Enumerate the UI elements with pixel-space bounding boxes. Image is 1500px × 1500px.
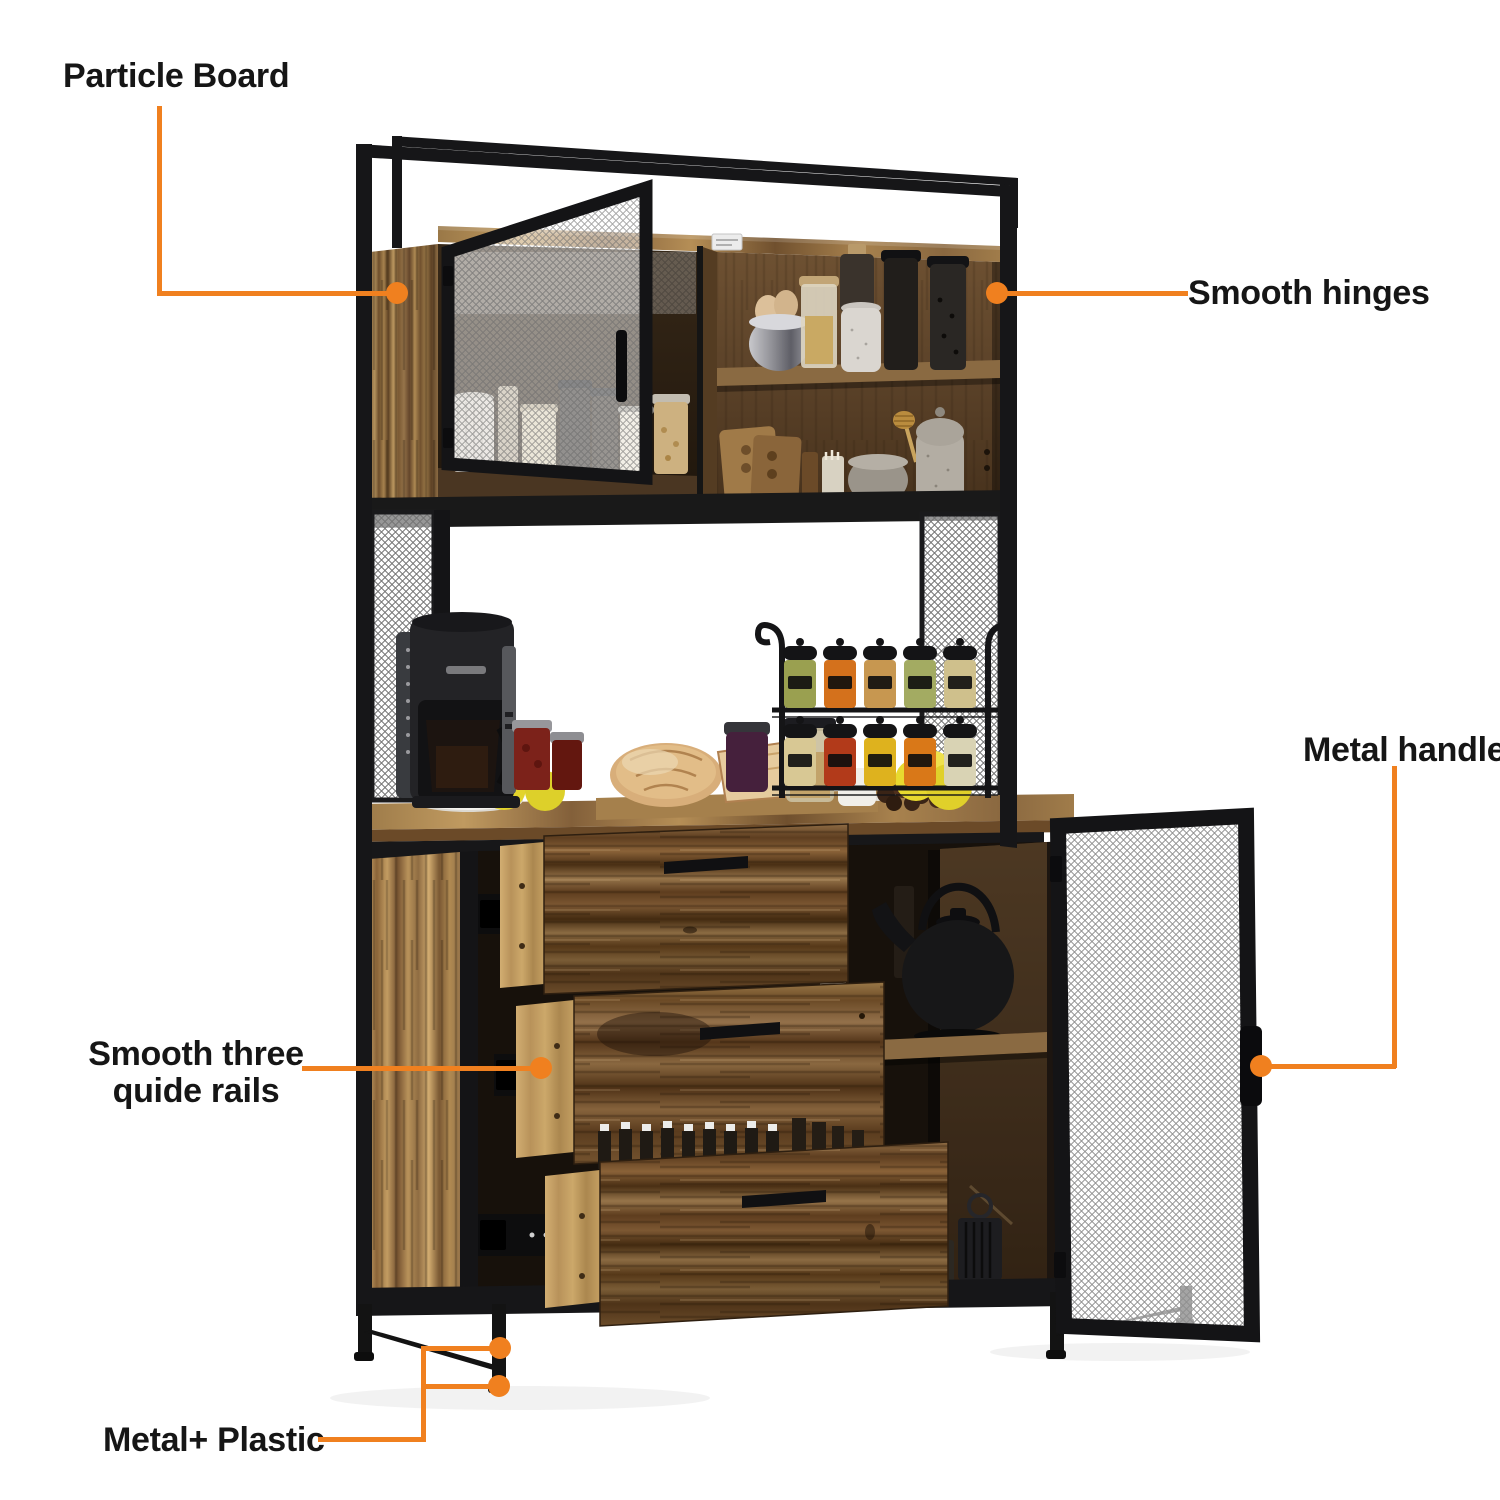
hinge-icon [1054, 1252, 1066, 1278]
drawer-top [478, 824, 848, 994]
guide-rails-callout-dot [530, 1057, 552, 1079]
callout-label-smooth-hinges: Smooth hinges [1188, 274, 1430, 313]
hinge-icon [443, 428, 453, 448]
smooth-hinges-leader-horizontal [1004, 291, 1188, 296]
callout-label-metal-handle: Metal handle [1303, 731, 1500, 770]
drawer-front [600, 1142, 948, 1326]
particle-board-leader-horizontal [157, 291, 389, 296]
door-latch [712, 234, 742, 250]
guide-rails-line2: quide rails [113, 1072, 280, 1110]
spice-rack [758, 625, 1012, 798]
metal-plastic-callout-dot-upper [489, 1337, 511, 1359]
hutch-right-compartment [717, 244, 1000, 512]
metal-plastic-leader-branch-upper [421, 1346, 495, 1351]
spice-jars-tier1 [783, 638, 977, 708]
lower-mesh-door [1050, 816, 1262, 1334]
particle-board-leader-vertical [157, 106, 162, 296]
metal-plastic-leader-horizontal-1 [318, 1437, 426, 1442]
metal-handle-leader-vertical [1392, 766, 1397, 1068]
callout-label-metal-plastic: Metal+ Plastic [103, 1421, 325, 1460]
smooth-hinges-callout-dot [986, 282, 1008, 304]
product-illustration [0, 0, 1500, 1500]
floor-shadow [330, 1343, 1250, 1410]
guide-rails-line1: Smooth three [88, 1035, 304, 1073]
drawer-front [544, 824, 848, 994]
metal-plastic-leader-branch-lower [421, 1384, 494, 1389]
particle-board-callout-dot [386, 282, 408, 304]
metal-handle-leader-horizontal [1262, 1064, 1396, 1069]
counter-items [396, 612, 1012, 820]
metal-plastic-leader-vertical [421, 1346, 426, 1442]
hinge-icon [1050, 856, 1062, 882]
callout-label-particle-board: Particle Board [63, 57, 289, 96]
bread-loaf [610, 742, 798, 807]
metal-plastic-callout-dot-lower [488, 1375, 510, 1397]
metal-handle-callout-dot [1250, 1055, 1272, 1077]
upper-door-handle [616, 330, 627, 402]
guide-rails-leader-horizontal [302, 1066, 532, 1071]
hinge-icon [443, 266, 453, 286]
callout-label-guide-rails: Smooth three quide rails [86, 1036, 306, 1110]
coffee-maker [396, 612, 520, 808]
jam-jars [512, 720, 584, 790]
left-frame-post [356, 144, 372, 1312]
annotated-product-image: Particle Board Smooth hinges Metal handl… [0, 0, 1500, 1500]
spice-jars-tier2 [783, 716, 977, 786]
